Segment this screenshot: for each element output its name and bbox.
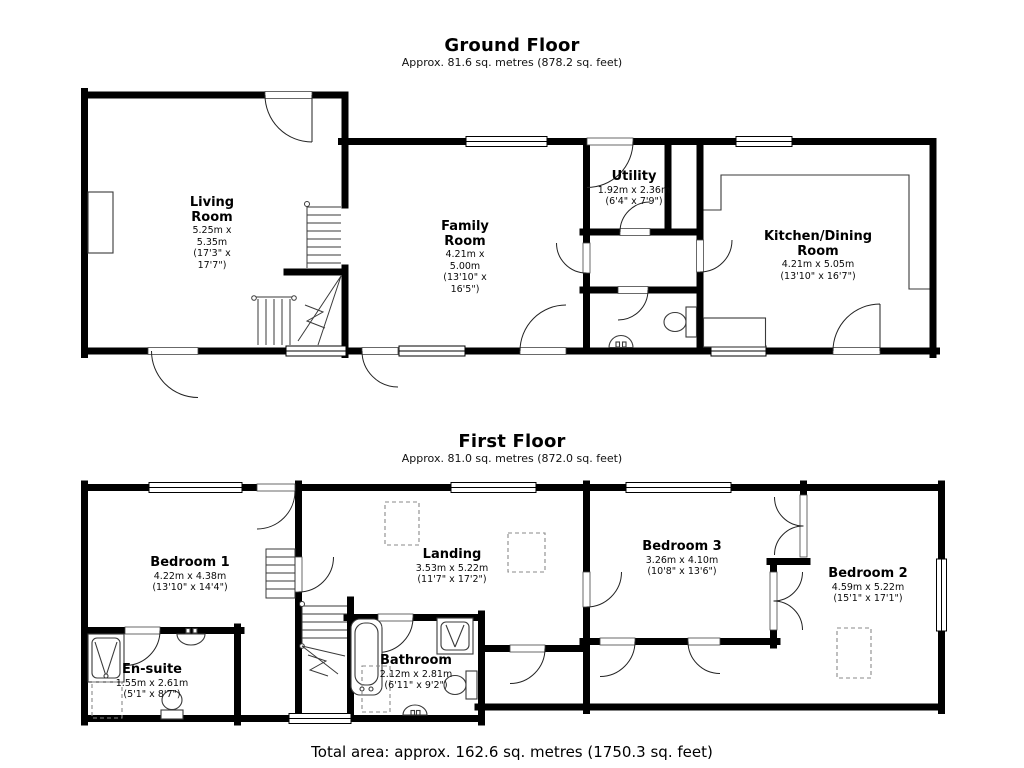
room-name: Bedroom 3 xyxy=(642,540,721,555)
room-label-landing: Landing 3.53m x 5.22m (11'7" x 17'2") xyxy=(416,548,488,586)
first-walls xyxy=(85,484,942,722)
room-name: Kitchen/Dining Room xyxy=(753,230,883,259)
wc-toilet xyxy=(664,313,686,332)
ensuite-cistern xyxy=(161,710,183,719)
room-dims-imperial: (11'7" x 17'2") xyxy=(416,574,488,586)
room-dims-metric: 1.55m x 2.61m xyxy=(116,678,188,690)
first-floor-title: First Floor xyxy=(0,431,1024,452)
room-label-family-room: Family Room 4.21m x 5.00m (13'10" x 16'5… xyxy=(433,220,497,295)
room-dims-imperial: (17'3" x 17'7") xyxy=(180,248,244,271)
room-dims-metric: 4.22m x 4.38m xyxy=(150,571,229,583)
room-dims-metric: 4.21m x 5.00m xyxy=(433,249,497,272)
first-floor-subtitle: Approx. 81.0 sq. metres (872.0 sq. feet) xyxy=(0,452,1024,465)
ground-floor-title: Ground Floor xyxy=(0,35,1024,56)
ground-floor-subtitle: Approx. 81.6 sq. metres (878.2 sq. feet) xyxy=(0,56,1024,69)
room-label-bedroom-1: Bedroom 1 4.22m x 4.38m (13'10" x 14'4") xyxy=(150,556,229,594)
total-area-text: Total area: approx. 162.6 sq. metres (17… xyxy=(0,743,1024,761)
room-name: Bathroom xyxy=(380,654,452,669)
room-name: Landing xyxy=(416,548,488,563)
room-name: Bedroom 2 xyxy=(828,567,907,582)
room-dims-imperial: (13'10" x 16'5") xyxy=(433,272,497,295)
room-dims-metric: 3.26m x 4.10m xyxy=(642,555,721,567)
floorplan-page: Ground Floor Approx. 81.6 sq. metres (87… xyxy=(0,0,1024,768)
first-staircase xyxy=(300,602,348,677)
ensuite-sink xyxy=(177,634,205,645)
room-dims-imperial: (13'10" x 16'7") xyxy=(753,271,883,283)
floorplan-drawing xyxy=(0,0,1024,768)
room-label-bathroom: Bathroom 2.12m x 2.81m (6'11" x 9'2") xyxy=(380,654,452,692)
room-dims-imperial: (6'4" x 7'9") xyxy=(598,196,670,208)
room-dims-imperial: (10'8" x 13'6") xyxy=(642,566,721,578)
airing-cupboard xyxy=(266,549,295,598)
room-dims-imperial: (15'1" x 17'1") xyxy=(828,593,907,605)
room-name: En-suite xyxy=(116,663,188,678)
room-label-ensuite: En-suite 1.55m x 2.61m (5'1" x 8'7") xyxy=(116,663,188,701)
first-floor-plan xyxy=(85,483,947,724)
wc-cistern xyxy=(686,307,697,337)
first-windows xyxy=(149,483,947,724)
room-dims-metric: 4.21m x 5.05m xyxy=(753,259,883,271)
room-name: Utility xyxy=(598,170,670,185)
room-dims-metric: 4.59m x 5.22m xyxy=(828,582,907,594)
room-label-living-room: Living Room 5.25m x 5.35m (17'3" x 17'7"… xyxy=(180,196,244,271)
wc-sink xyxy=(609,336,633,348)
room-name: Living Room xyxy=(180,196,244,225)
room-dims-metric: 3.53m x 5.22m xyxy=(416,563,488,575)
room-label-kitchen-dining: Kitchen/Dining Room 4.21m x 5.05m (13'10… xyxy=(753,230,883,282)
room-dims-metric: 2.12m x 2.81m xyxy=(380,669,452,681)
kitchen-counter-unit xyxy=(704,318,766,347)
room-dims-imperial: (6'11" x 9'2") xyxy=(380,680,452,692)
chimney-breast xyxy=(88,192,113,253)
bathroom-cistern xyxy=(466,671,477,699)
room-dims-metric: 5.25m x 5.35m xyxy=(180,225,244,248)
room-dims-imperial: (13'10" x 14'4") xyxy=(150,582,229,594)
room-label-bedroom-3: Bedroom 3 3.26m x 4.10m (10'8" x 13'6") xyxy=(642,540,721,578)
room-name: Family Room xyxy=(433,220,497,249)
room-dims-metric: 1.92m x 2.36m xyxy=(598,185,670,197)
room-name: Bedroom 1 xyxy=(150,556,229,571)
room-label-bedroom-2: Bedroom 2 4.59m x 5.22m (15'1" x 17'1") xyxy=(828,567,907,605)
room-label-utility: Utility 1.92m x 2.36m (6'4" x 7'9") xyxy=(598,170,670,208)
room-dims-imperial: (5'1" x 8'7") xyxy=(116,689,188,701)
